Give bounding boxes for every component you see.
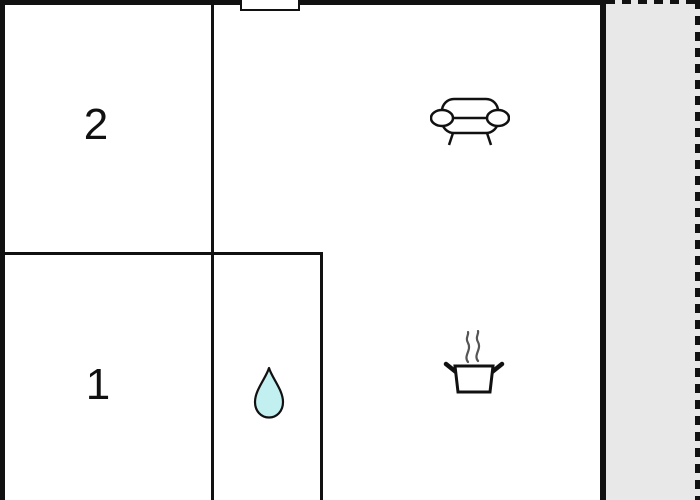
terrace-area [606, 0, 700, 500]
wall-outer-left [0, 0, 5, 500]
wall-interior-horizontal [0, 252, 323, 255]
sofa-leg-right [487, 133, 491, 145]
wall-terrace-separator [600, 0, 606, 500]
steam-line-right [476, 331, 479, 361]
room-1-label: 1 [73, 363, 123, 407]
sofa-armrest-left [431, 110, 453, 126]
sofa-armrest-right [487, 110, 509, 126]
water-drop-shape [255, 368, 283, 418]
room-2-label: 2 [71, 103, 121, 147]
steam-line-left [466, 332, 469, 362]
wall-interior-vertical-right [320, 252, 323, 500]
steam-pot-icon [443, 330, 505, 396]
wall-outer-top [0, 0, 606, 5]
water-drop-icon [251, 365, 287, 420]
floorplan-canvas: 2 1 [0, 0, 700, 500]
window-marker-icon [240, 0, 300, 11]
terrace-dashed-border-right [695, 0, 700, 500]
pot-body [455, 366, 493, 392]
sofa-icon [430, 95, 510, 147]
sofa-leg-left [449, 133, 453, 145]
terrace-dashed-border-top [606, 0, 700, 4]
